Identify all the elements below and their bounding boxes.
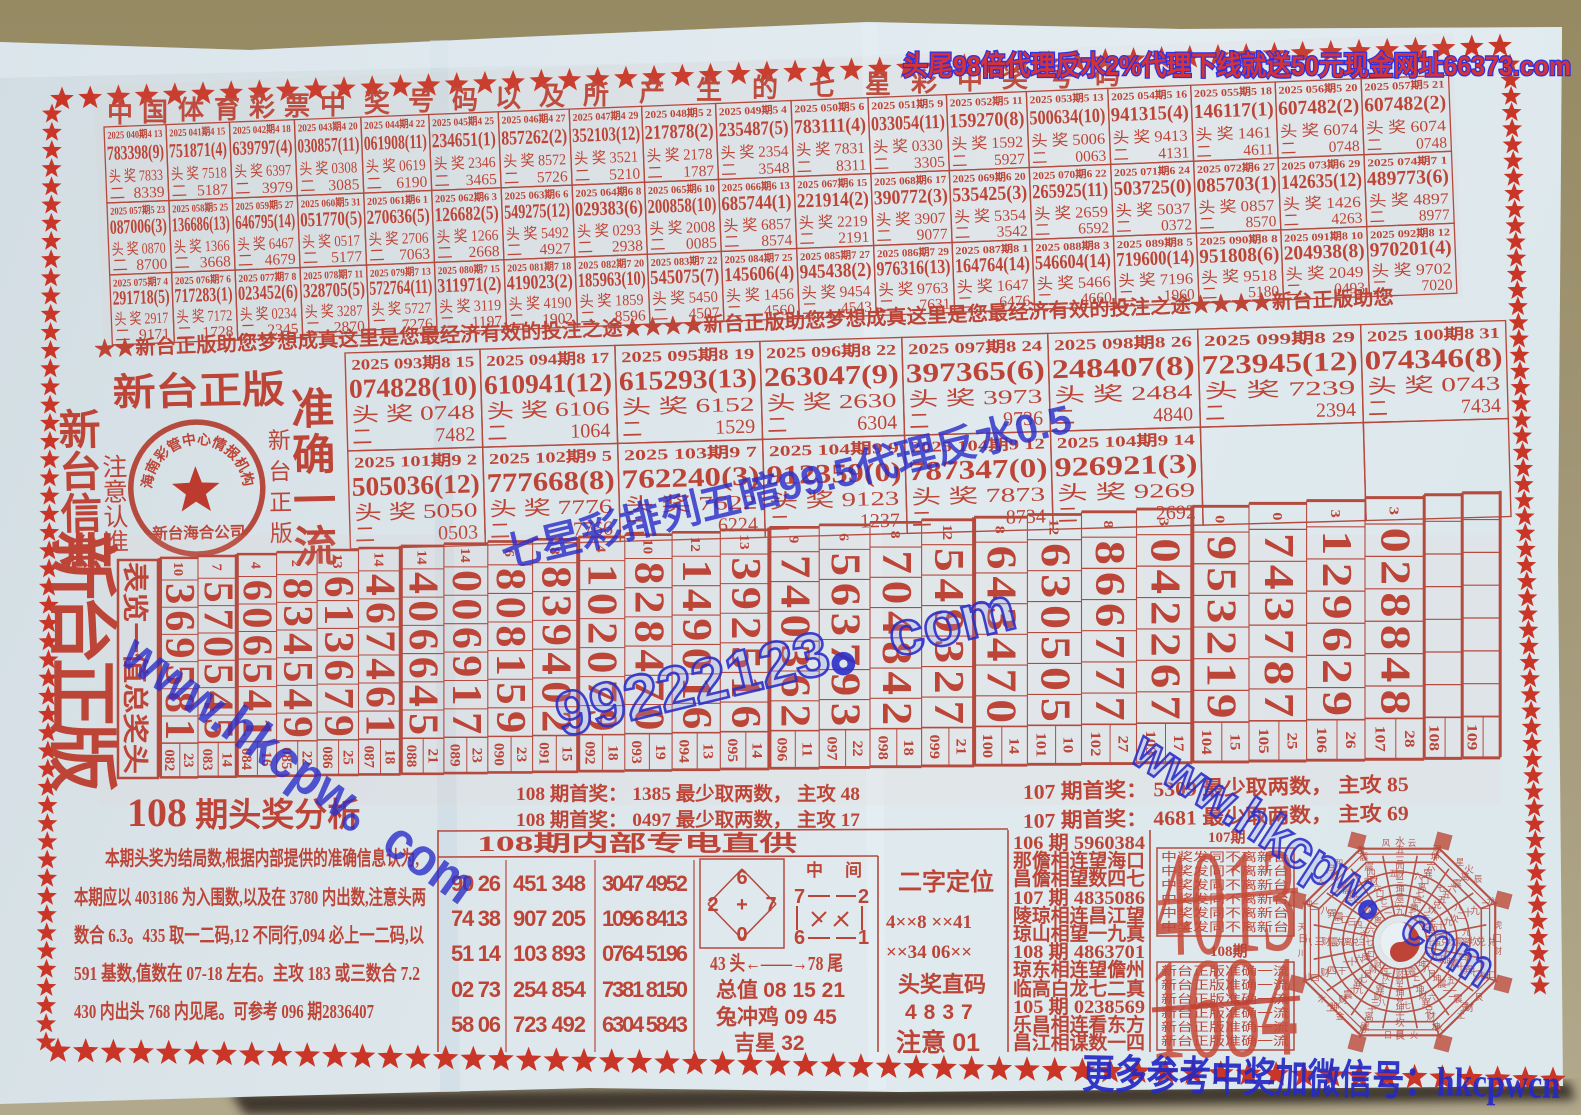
svg-text:日: 日 xyxy=(1384,1030,1393,1040)
svg-text:091: 091 xyxy=(536,742,551,765)
svg-text:地: 地 xyxy=(1304,898,1313,908)
svg-text:500634(10): 500634(10) xyxy=(1029,105,1106,130)
svg-text:8700: 8700 xyxy=(136,256,168,274)
svg-text:头尾98倍代理反水2%代理下线就送50元现金网址66373.: 头尾98倍代理反水2%代理下线就送50元现金网址66373.com xyxy=(903,50,1571,81)
svg-text:099: 099 xyxy=(926,734,942,759)
svg-text:74 38: 74 38 xyxy=(451,906,501,931)
svg-text:川: 川 xyxy=(1298,948,1307,958)
svg-text:二: 二 xyxy=(721,162,737,180)
svg-text:941315(4): 941315(4) xyxy=(1110,101,1189,126)
svg-text:0085: 0085 xyxy=(686,235,718,253)
svg-text:1: 1 xyxy=(674,560,720,583)
svg-text:4: 4 xyxy=(1142,570,1189,594)
svg-text:4: 4 xyxy=(274,633,320,655)
svg-text:风: 风 xyxy=(1382,838,1391,848)
svg-text:12: 12 xyxy=(687,537,702,552)
svg-text:352103(12): 352103(12) xyxy=(572,122,641,147)
svg-text:235487(5): 235487(5) xyxy=(718,117,789,142)
svg-text:639797(4): 639797(4) xyxy=(232,136,293,160)
svg-text:二: 二 xyxy=(369,247,385,265)
svg-text:6304 5843: 6304 5843 xyxy=(602,1012,688,1037)
svg-text:9: 9 xyxy=(1199,536,1246,561)
svg-text:六: 六 xyxy=(1428,992,1436,1002)
svg-text:489773(6): 489773(6) xyxy=(1367,165,1450,190)
svg-text:23: 23 xyxy=(468,748,484,763)
svg-text:二: 二 xyxy=(171,183,187,201)
svg-text:7: 7 xyxy=(1256,533,1303,558)
svg-text:572764(11): 572764(11) xyxy=(369,276,433,300)
svg-text:22: 22 xyxy=(849,740,865,756)
svg-text:8: 8 xyxy=(274,578,320,600)
svg-text:6592: 6592 xyxy=(1078,219,1110,237)
svg-text:二: 二 xyxy=(952,153,968,171)
svg-text:7381 8150: 7381 8150 xyxy=(602,977,688,1002)
svg-text:4131: 4131 xyxy=(1158,144,1190,162)
svg-text:263047(9): 263047(9) xyxy=(763,359,899,393)
svg-text:二: 二 xyxy=(724,234,740,252)
svg-text:1787: 1787 xyxy=(683,163,715,181)
svg-text:准: 准 xyxy=(291,385,335,434)
svg-text:7: 7 xyxy=(765,894,776,916)
svg-text:雨: 雨 xyxy=(1433,844,1442,854)
svg-text:4: 4 xyxy=(248,562,264,569)
svg-text:二: 二 xyxy=(487,423,508,446)
svg-text:头 奖 7518: 头 奖 7518 xyxy=(171,163,228,183)
svg-text:545075(7): 545075(7) xyxy=(650,265,720,290)
svg-text:0: 0 xyxy=(579,593,625,616)
svg-text:4840: 4840 xyxy=(1153,403,1194,426)
svg-text:三: 三 xyxy=(1314,938,1324,948)
svg-text:5: 5 xyxy=(400,713,446,735)
svg-text:2: 2 xyxy=(925,670,972,694)
svg-text:945438(2): 945438(2) xyxy=(799,259,872,284)
svg-text:970201(4): 970201(4) xyxy=(1369,236,1452,261)
svg-text:051770(5): 051770(5) xyxy=(300,207,363,231)
svg-text:3: 3 xyxy=(1199,599,1246,624)
svg-text:5: 5 xyxy=(822,553,869,576)
svg-text:3: 3 xyxy=(315,632,361,654)
svg-text:二: 二 xyxy=(954,225,970,243)
svg-text:14: 14 xyxy=(1006,738,1022,755)
svg-text:107: 107 xyxy=(1372,726,1387,752)
svg-text:木: 木 xyxy=(1318,994,1327,1004)
svg-text:二: 二 xyxy=(1034,222,1050,240)
svg-text:777668(8): 777668(8) xyxy=(486,465,615,499)
svg-text:艮: 艮 xyxy=(1395,1030,1405,1042)
svg-text:11: 11 xyxy=(799,742,815,757)
svg-text:3: 3 xyxy=(274,605,320,627)
svg-text:8: 8 xyxy=(626,620,672,643)
svg-text:7: 7 xyxy=(315,687,361,709)
svg-text:5: 5 xyxy=(487,682,534,704)
svg-text:607482(2): 607482(2) xyxy=(1364,91,1447,116)
svg-text:8339: 8339 xyxy=(133,184,165,202)
svg-text:3542: 3542 xyxy=(996,223,1028,241)
svg-text:8: 8 xyxy=(1372,625,1418,650)
svg-text:18: 18 xyxy=(900,740,916,757)
svg-text:3668: 3668 xyxy=(199,253,231,271)
svg-text:一: 一 xyxy=(1330,942,1338,951)
svg-text:6: 6 xyxy=(1142,664,1189,688)
svg-text:头 奖 0619: 头 奖 0619 xyxy=(365,156,426,176)
svg-text:6: 6 xyxy=(234,580,281,601)
svg-text:265925(11): 265925(11) xyxy=(1032,179,1109,204)
svg-text:9: 9 xyxy=(786,536,801,544)
svg-text:水: 水 xyxy=(1395,836,1405,848)
svg-text:七: 七 xyxy=(1403,1001,1411,1010)
svg-text:23: 23 xyxy=(513,747,529,762)
svg-text:7: 7 xyxy=(1087,634,1133,658)
svg-text:5187: 5187 xyxy=(197,181,229,199)
svg-text:6: 6 xyxy=(400,657,446,679)
svg-text:虎: 虎 xyxy=(1494,920,1503,930)
svg-text:291718(5): 291718(5) xyxy=(112,286,170,310)
svg-text:074828(10): 074828(10) xyxy=(349,370,478,404)
svg-text:4: 4 xyxy=(772,585,819,608)
svg-text:4: 4 xyxy=(533,652,579,674)
svg-text:确: 确 xyxy=(292,431,336,480)
svg-text:0: 0 xyxy=(978,699,1025,723)
svg-text:26: 26 xyxy=(1342,731,1357,748)
svg-text:505036(12): 505036(12) xyxy=(351,468,480,502)
svg-text:八: 八 xyxy=(1320,907,1330,917)
svg-text:二: 二 xyxy=(574,167,590,185)
svg-text:二: 二 xyxy=(577,239,593,257)
svg-text:台: 台 xyxy=(59,449,102,497)
svg-text:火: 火 xyxy=(1464,864,1474,876)
svg-text:二: 二 xyxy=(237,252,253,270)
svg-text:7: 7 xyxy=(357,630,403,652)
svg-text:106: 106 xyxy=(1313,727,1328,753)
svg-text:0: 0 xyxy=(400,600,446,622)
svg-text:新: 新 xyxy=(268,428,292,453)
svg-text:星: 星 xyxy=(1456,857,1465,867)
svg-text:2: 2 xyxy=(1314,563,1360,588)
svg-text:数合 6.3。435 取一二码,12 不同行,094 必上一: 数合 6.3。435 取一二码,12 不同行,094 必上一二码,以 xyxy=(74,923,424,947)
svg-text:9: 9 xyxy=(1199,694,1246,719)
svg-text:108 期首奖： 1385 最少取两数， 主攻 48: 108 期首奖： 1385 最少取两数， 主攻 48 xyxy=(516,782,860,805)
svg-text:23: 23 xyxy=(180,753,196,768)
svg-text:088: 088 xyxy=(403,745,419,768)
svg-text:坎: 坎 xyxy=(1395,1017,1405,1029)
svg-text:4: 4 xyxy=(357,658,403,680)
svg-text:0748: 0748 xyxy=(1328,138,1360,156)
svg-text:270636(5): 270636(5) xyxy=(366,205,430,229)
svg-text:074346(8): 074346(8) xyxy=(1364,342,1503,376)
svg-text:549275(12): 549275(12) xyxy=(504,199,571,224)
svg-text:951808(6): 951808(6) xyxy=(1199,243,1280,268)
svg-text:一: 一 xyxy=(293,478,337,526)
svg-text:二: 二 xyxy=(622,419,643,442)
svg-text:723 492: 723 492 xyxy=(513,1012,586,1037)
svg-text:907 205: 907 205 xyxy=(513,906,586,931)
svg-text:新台正版: 新台正版 xyxy=(42,530,120,792)
svg-text:28: 28 xyxy=(1401,730,1416,747)
svg-text:089: 089 xyxy=(446,744,462,767)
svg-text:4: 4 xyxy=(873,671,920,695)
svg-text:2191: 2191 xyxy=(838,229,870,247)
svg-text:18: 18 xyxy=(382,749,398,764)
svg-text:二: 二 xyxy=(503,170,519,188)
svg-text:6: 6 xyxy=(1314,627,1360,652)
svg-text:3979: 3979 xyxy=(262,179,294,197)
svg-text:0: 0 xyxy=(1269,512,1285,521)
svg-text:9: 9 xyxy=(533,624,579,646)
svg-text:二: 二 xyxy=(437,245,453,263)
svg-text:2: 2 xyxy=(1142,601,1189,625)
svg-text:095: 095 xyxy=(724,738,740,762)
svg-text:248407(8): 248407(8) xyxy=(1051,350,1195,384)
svg-text:辰: 辰 xyxy=(1474,874,1483,884)
svg-text:7: 7 xyxy=(873,550,920,574)
svg-text:9: 9 xyxy=(443,655,489,677)
svg-text:857262(2): 857262(2) xyxy=(501,125,568,150)
svg-text:7: 7 xyxy=(772,555,819,578)
svg-text:8977: 8977 xyxy=(1419,206,1451,224)
svg-text:本期应以 403186 为入围数,以及在 3780 内出数,: 本期应以 403186 为入围数,以及在 3780 内出数,注意头两 xyxy=(74,885,426,909)
svg-text:6: 6 xyxy=(357,686,403,708)
svg-text:3: 3 xyxy=(1032,574,1078,598)
svg-text:头 奖 0748: 头 奖 0748 xyxy=(351,400,475,426)
svg-text:龙: 龙 xyxy=(1487,896,1496,906)
svg-text:1529: 1529 xyxy=(715,416,756,439)
svg-text:2938: 2938 xyxy=(612,237,644,255)
svg-text:6: 6 xyxy=(794,927,805,949)
svg-text:六: 六 xyxy=(1426,861,1436,873)
svg-text:3: 3 xyxy=(822,703,869,726)
svg-text:九: 九 xyxy=(1355,986,1363,995)
svg-text:9: 9 xyxy=(1314,595,1360,620)
svg-text:723945(12): 723945(12) xyxy=(1201,346,1358,380)
svg-text:日: 日 xyxy=(1298,934,1308,945)
svg-text:二: 二 xyxy=(300,178,316,196)
svg-text:535425(3): 535425(3) xyxy=(952,182,1028,207)
svg-text:2: 2 xyxy=(873,702,920,726)
svg-text:10: 10 xyxy=(170,562,186,576)
svg-text:0: 0 xyxy=(1032,667,1078,691)
svg-text:4: 4 xyxy=(1372,657,1418,682)
svg-text:7: 7 xyxy=(794,886,805,908)
svg-text:1: 1 xyxy=(487,654,534,676)
svg-text:6: 6 xyxy=(1087,603,1133,627)
svg-text:2: 2 xyxy=(858,886,869,908)
svg-text:15: 15 xyxy=(1227,733,1243,750)
svg-text:8: 8 xyxy=(1372,592,1418,617)
svg-text:8574: 8574 xyxy=(761,232,793,250)
svg-text:6: 6 xyxy=(357,602,403,624)
svg-text:8: 8 xyxy=(487,625,534,647)
svg-text:0063: 0063 xyxy=(1075,148,1107,166)
svg-text:0: 0 xyxy=(487,597,534,619)
svg-text:234651(1): 234651(1) xyxy=(431,128,496,152)
svg-text:9: 9 xyxy=(1314,691,1360,716)
svg-text:4263: 4263 xyxy=(1331,210,1363,228)
svg-text:4: 4 xyxy=(274,688,320,710)
svg-text:三: 三 xyxy=(1395,857,1405,867)
svg-text:6: 6 xyxy=(400,628,446,650)
svg-text:二: 二 xyxy=(770,513,791,536)
svg-text:546604(14): 546604(14) xyxy=(1034,249,1111,274)
svg-text:四: 四 xyxy=(1380,967,1388,976)
svg-text:1: 1 xyxy=(443,684,489,706)
svg-text:9: 9 xyxy=(315,715,361,737)
svg-text:兔冲鸡 09 45: 兔冲鸡 09 45 xyxy=(716,1005,837,1029)
svg-text:102: 102 xyxy=(1087,731,1103,756)
svg-text:中间: 中间 xyxy=(806,860,884,880)
svg-text:3305: 3305 xyxy=(914,154,946,172)
svg-text:0: 0 xyxy=(443,570,489,592)
svg-text:2: 2 xyxy=(1199,631,1246,656)
svg-text:七: 七 xyxy=(1437,884,1445,893)
svg-text:12: 12 xyxy=(1046,519,1061,535)
svg-text:3: 3 xyxy=(722,557,769,580)
svg-text:5726: 5726 xyxy=(536,168,568,186)
svg-text:4: 4 xyxy=(1256,565,1303,590)
svg-text:火: 火 xyxy=(1410,1030,1419,1040)
svg-text:5177: 5177 xyxy=(331,248,363,266)
svg-text:8: 8 xyxy=(1372,690,1418,715)
svg-text:976316(13): 976316(13) xyxy=(876,256,951,281)
svg-text:0764 5196: 0764 5196 xyxy=(602,941,688,966)
svg-text:月: 月 xyxy=(1359,1024,1368,1034)
svg-text:新: 新 xyxy=(58,407,101,455)
svg-text:5927: 5927 xyxy=(994,151,1026,169)
svg-text:1064: 1064 xyxy=(570,420,611,443)
svg-text:头 奖 5050: 头 奖 5050 xyxy=(354,498,478,524)
svg-text:财: 财 xyxy=(1338,994,1348,1006)
svg-text:意: 意 xyxy=(103,479,129,508)
svg-text:6304: 6304 xyxy=(857,412,898,435)
svg-text:二: 二 xyxy=(1113,147,1129,165)
svg-text:02 73: 02 73 xyxy=(451,977,501,1002)
svg-text:二: 二 xyxy=(352,426,373,449)
svg-text:451 348: 451 348 xyxy=(513,871,586,896)
svg-text:注: 注 xyxy=(102,454,128,483)
svg-text:142635(12): 142635(12) xyxy=(1281,169,1363,194)
svg-text:4679: 4679 xyxy=(264,251,296,269)
svg-text:7: 7 xyxy=(1256,629,1303,654)
svg-text:136686(13): 136686(13) xyxy=(171,212,230,236)
svg-text:13: 13 xyxy=(700,743,716,759)
svg-text:1: 1 xyxy=(357,714,403,736)
svg-text:××34 06××: ××34 06×× xyxy=(886,942,972,963)
svg-text:6: 6 xyxy=(1032,543,1078,567)
svg-text:6: 6 xyxy=(736,867,747,889)
svg-text:5210: 5210 xyxy=(609,165,641,183)
svg-text:430 内出头 768 内见尾。可参考 096 期28364: 430 内出头 768 内见尾。可参考 096 期2836407 xyxy=(74,999,374,1023)
svg-text:023452(6): 023452(6) xyxy=(238,281,299,305)
svg-text:天: 天 xyxy=(1298,922,1307,932)
svg-text:八: 八 xyxy=(1378,998,1386,1007)
svg-text:646795(14): 646795(14) xyxy=(235,210,296,234)
svg-text:591 基数,值数在 07-18 左右。主攻 183 或三数: 591 基数,值数在 07-18 左右。主攻 183 或三数合 7.2 xyxy=(74,961,420,985)
svg-text:二: 二 xyxy=(876,228,892,246)
svg-text:3: 3 xyxy=(1386,507,1401,516)
svg-text:二: 二 xyxy=(1205,402,1226,425)
svg-text:头 奖 6106: 头 奖 6106 xyxy=(486,397,610,423)
svg-text:098: 098 xyxy=(875,735,891,760)
svg-text:二: 二 xyxy=(112,257,128,275)
svg-text:610941(12): 610941(12) xyxy=(484,367,613,401)
svg-text:吉星 32: 吉星 32 xyxy=(734,1031,805,1055)
svg-text:105: 105 xyxy=(1255,728,1271,754)
svg-text:083: 083 xyxy=(199,749,215,771)
svg-text:2: 2 xyxy=(1314,659,1360,684)
svg-text:5: 5 xyxy=(1032,636,1078,660)
svg-text:二: 二 xyxy=(1199,215,1215,233)
svg-text:25: 25 xyxy=(1284,732,1300,749)
svg-text:山: 山 xyxy=(1305,972,1314,982)
svg-text:二: 二 xyxy=(1368,398,1389,421)
svg-text:8: 8 xyxy=(533,566,579,588)
svg-text:4: 4 xyxy=(400,572,446,594)
svg-text:103 893: 103 893 xyxy=(513,941,586,966)
svg-text:7: 7 xyxy=(443,712,489,734)
svg-text:4: 4 xyxy=(400,685,446,707)
svg-text:1: 1 xyxy=(1199,662,1246,687)
svg-text:二: 二 xyxy=(873,156,889,174)
svg-text:认: 认 xyxy=(103,504,129,533)
svg-text:5: 5 xyxy=(274,661,320,683)
svg-text:419023(2): 419023(2) xyxy=(506,270,573,295)
svg-text:1: 1 xyxy=(1314,530,1360,555)
svg-text:二: 二 xyxy=(1333,917,1341,926)
svg-text:正: 正 xyxy=(269,490,293,515)
svg-text:9: 9 xyxy=(674,618,720,641)
svg-text:2: 2 xyxy=(626,591,672,614)
svg-text:6190: 6190 xyxy=(396,174,428,192)
svg-text:7063: 7063 xyxy=(399,246,431,264)
svg-text:164764(14): 164764(14) xyxy=(955,253,1031,278)
svg-text:2: 2 xyxy=(707,894,718,916)
svg-text:头 奖 2346: 头 奖 2346 xyxy=(433,153,496,173)
svg-text:二: 二 xyxy=(1283,212,1299,230)
svg-text:九: 九 xyxy=(1470,905,1480,917)
svg-text:061908(11): 061908(11) xyxy=(363,131,427,155)
svg-text:503725(0): 503725(0) xyxy=(1113,175,1192,200)
svg-text:6: 6 xyxy=(978,546,1025,570)
svg-text:8570: 8570 xyxy=(1245,213,1277,231)
svg-text:头奖直码: 头奖直码 xyxy=(898,972,986,997)
svg-text:6: 6 xyxy=(315,576,361,598)
svg-text:注意 01: 注意 01 xyxy=(896,1028,980,1057)
svg-text:头 奖 0308: 头 奖 0308 xyxy=(299,158,358,178)
svg-text:琼东相连望儋州: 琼东相连望儋州 xyxy=(1013,958,1145,981)
svg-text:10: 10 xyxy=(1060,737,1076,754)
svg-text:13: 13 xyxy=(736,534,751,549)
svg-text:6: 6 xyxy=(836,533,851,541)
svg-text:5: 5 xyxy=(925,548,972,572)
svg-text:1: 1 xyxy=(315,604,361,626)
svg-text:7: 7 xyxy=(1087,697,1133,721)
svg-text:3548: 3548 xyxy=(758,160,790,178)
svg-text:390772(3): 390772(3) xyxy=(873,185,948,210)
svg-text:台: 台 xyxy=(268,459,292,484)
svg-text:13: 13 xyxy=(329,554,345,568)
svg-text:三: 三 xyxy=(1402,970,1410,979)
svg-text:8: 8 xyxy=(626,562,672,585)
svg-text:9: 9 xyxy=(487,711,534,733)
svg-text:311971(2): 311971(2) xyxy=(437,273,502,297)
svg-text:5: 5 xyxy=(1199,567,1246,592)
svg-text:719600(14): 719600(14) xyxy=(1116,246,1195,271)
svg-text:685744(1): 685744(1) xyxy=(721,191,792,216)
svg-text:头 奖 6397: 头 奖 6397 xyxy=(234,161,292,181)
svg-text:6: 6 xyxy=(1087,572,1133,596)
svg-text:土: 土 xyxy=(1326,1001,1336,1014)
svg-text:0: 0 xyxy=(1032,605,1078,629)
svg-text:0748: 0748 xyxy=(1416,134,1448,152)
